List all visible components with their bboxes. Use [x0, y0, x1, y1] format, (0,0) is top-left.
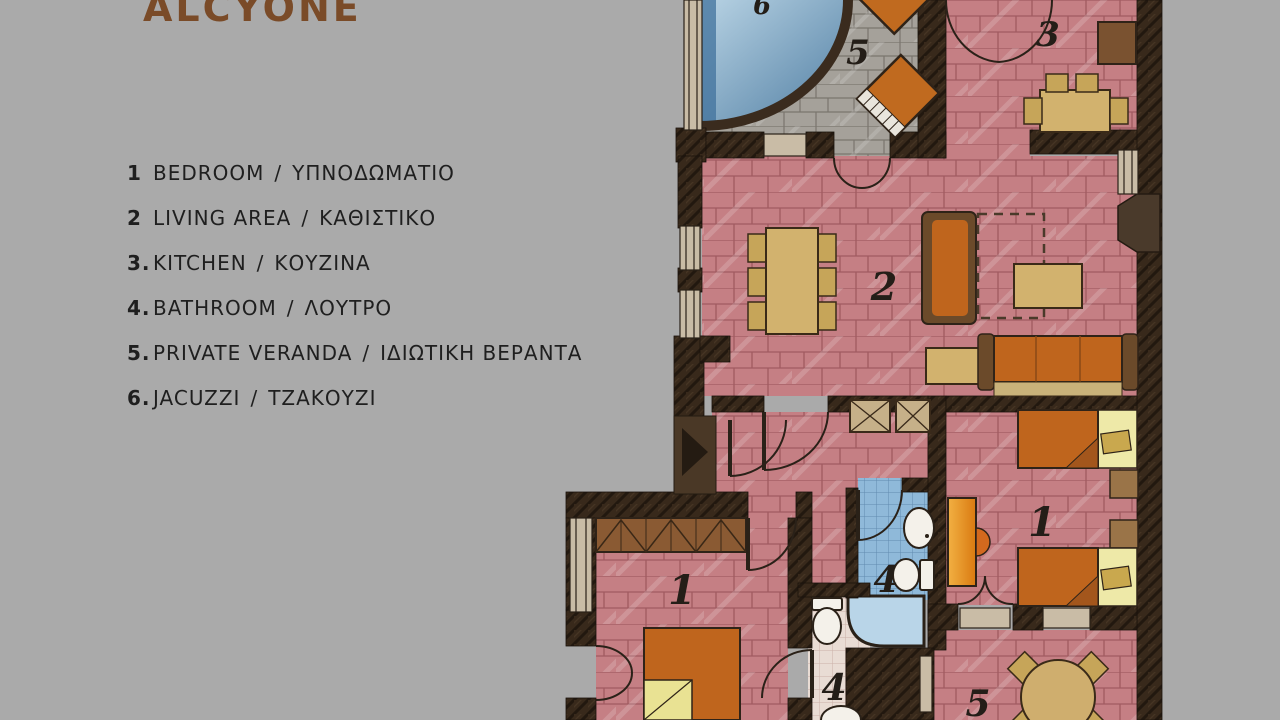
room-label-bedroom-left: 1 — [668, 567, 696, 614]
threshold — [1043, 608, 1090, 628]
legend-item-bedroom: 1 BEDROOM / ΥΠΝΟΔΩΜΑΤΙΟ — [127, 150, 582, 195]
bed — [1018, 410, 1137, 468]
page: 6 5 3 2 1 4 1 4 5 ALCYONE 1 BEDROOM / ΥΠ… — [0, 0, 1280, 720]
entrance — [674, 416, 716, 494]
window — [684, 0, 702, 130]
nightstand — [1110, 470, 1138, 498]
window — [680, 226, 700, 270]
closet — [850, 400, 890, 432]
wardrobe — [596, 518, 746, 552]
sink — [904, 508, 934, 548]
window — [680, 290, 700, 338]
legend-item-separator: / — [287, 296, 295, 320]
legend-item-living-area: 2 LIVING AREA / ΚΑΘΙΣΤΙΚΟ — [127, 195, 582, 240]
legend-item-label-gr: ΚΑΘΙΣΤΙΚΟ — [319, 206, 436, 230]
side-table — [926, 348, 982, 384]
legend-item-number: 4. — [127, 296, 153, 320]
legend-item-separator: / — [274, 161, 282, 185]
legend-item-number: 6. — [127, 386, 153, 410]
legend-item-label-en: PRIVATE VERANDA — [153, 341, 352, 365]
legend-item-label-gr: ΙΔΙΩΤΙΚΗ ΒΕΡΑΝΤΑ — [380, 341, 582, 365]
veranda-bottom-furniture — [1008, 652, 1109, 720]
bathtub — [848, 596, 924, 646]
legend-item-label-en: JACUZZI — [153, 386, 240, 410]
kitchen-chair — [1110, 98, 1128, 124]
dining-table — [766, 228, 818, 334]
bed — [1018, 548, 1137, 606]
kitchen-chair — [1046, 74, 1068, 92]
legend-item-label-gr: ΤΖΑΚΟΥΖΙ — [268, 386, 376, 410]
room-label-bedroom-right: 1 — [1028, 499, 1056, 546]
legend-item-jacuzzi: 6. JACUZZI / ΤΖΑΚΟΥΖΙ — [127, 375, 582, 420]
closet — [896, 400, 930, 432]
kitchen-cabinet — [1098, 22, 1136, 64]
toilet — [812, 598, 842, 644]
legend-item-separator: / — [362, 341, 370, 365]
legend-item-number: 3. — [127, 251, 153, 275]
legend-item-label-en: KITCHEN — [153, 251, 247, 275]
legend-item-label-en: BATHROOM — [153, 296, 277, 320]
sofa-horizontal-arm — [978, 334, 994, 390]
kitchen-passage-floor — [946, 130, 1030, 158]
legend-item-label-gr: ΥΠΝΟΔΩΜΑΤΙΟ — [292, 161, 455, 185]
legend-item-number: 5. — [127, 341, 153, 365]
window — [1118, 150, 1138, 194]
wall-niche — [1118, 194, 1160, 252]
legend-item-number: 1 — [127, 161, 153, 185]
threshold — [764, 134, 806, 156]
legend-item-label-en: BEDROOM — [153, 161, 264, 185]
room-label-veranda-top: 5 — [846, 33, 870, 73]
room-label-kitchen: 3 — [1036, 15, 1060, 55]
legend: 1 BEDROOM / ΥΠΝΟΔΩΜΑΤΙΟ 2 LIVING AREA / … — [127, 150, 582, 420]
sofa-horizontal-arm — [1122, 334, 1138, 390]
sofa-vertical-cushion — [932, 220, 968, 316]
kitchen-chair — [1024, 98, 1042, 124]
legend-item-label-gr: ΚΟΥΖΙΝΑ — [274, 251, 370, 275]
hall-threshold — [748, 492, 796, 518]
dressing-table — [948, 498, 976, 586]
legend-item-number: 2 — [127, 206, 153, 230]
coffee-table — [1014, 264, 1082, 308]
legend-item-separator: / — [250, 386, 258, 410]
nightstand — [1110, 520, 1138, 548]
threshold — [920, 656, 932, 712]
window — [570, 518, 592, 612]
legend-item-kitchen: 3. KITCHEN / ΚΟΥΖΙΝΑ — [127, 240, 582, 285]
kitchen-chair — [1076, 74, 1098, 92]
legend-item-bathroom: 4. BATHROOM / ΛΟΥΤΡΟ — [127, 285, 582, 330]
bed — [644, 628, 740, 720]
sofa-horizontal — [994, 336, 1122, 382]
room-label-living: 2 — [870, 264, 897, 309]
kitchen-table — [1040, 90, 1110, 132]
legend-item-label-en: LIVING AREA — [153, 206, 291, 230]
page-title: ALCYONE — [143, 0, 362, 30]
closets — [850, 400, 930, 432]
threshold — [960, 608, 1010, 628]
room-label-jacuzzi: 6 — [753, 0, 771, 21]
corridor-floor — [812, 492, 848, 584]
legend-item-label-gr: ΛΟΥΤΡΟ — [305, 296, 393, 320]
legend-item-separator: / — [301, 206, 309, 230]
toilet — [893, 559, 934, 591]
room-label-bathroom-lower: 4 — [821, 667, 846, 709]
room-label-veranda-bottom: 5 — [965, 683, 990, 720]
legend-item-private-veranda: 5. PRIVATE VERANDA / ΙΔΙΩΤΙΚΗ ΒΕΡΑΝΤΑ — [127, 330, 582, 375]
sofa-horizontal-ledge — [994, 382, 1122, 396]
room-label-bathroom-upper: 4 — [873, 559, 898, 601]
legend-item-separator: / — [257, 251, 265, 275]
